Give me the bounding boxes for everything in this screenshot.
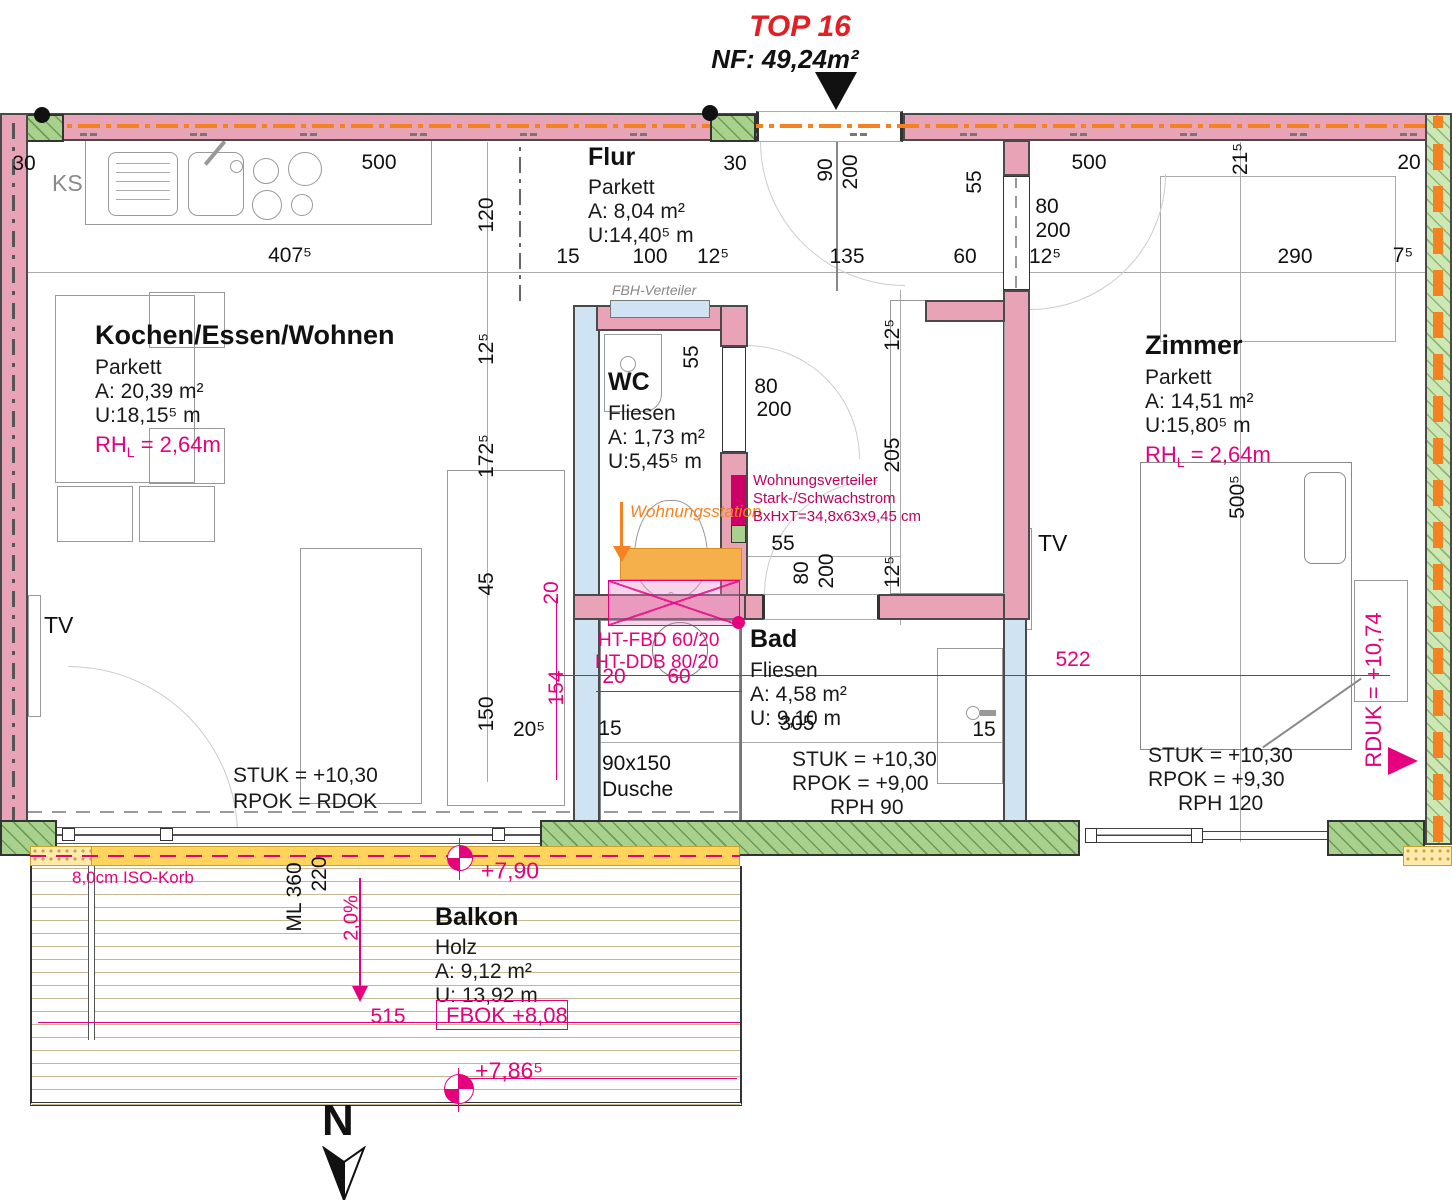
dusche-size-label: 90x150 — [602, 752, 671, 776]
dimension-label: 80 — [1035, 195, 1058, 219]
window-frame — [1191, 828, 1203, 843]
dimension-label: 200 — [756, 398, 791, 422]
room-area-zimmer: A: 14,51 m² — [1145, 390, 1254, 414]
ht-element-box — [608, 580, 740, 626]
sink-tap — [230, 160, 243, 173]
wohnungsverteiler-line3: BxHxT=34,8x63x9,45 cm — [753, 508, 921, 525]
wardrobe-niche — [890, 300, 1005, 594]
survey-point — [444, 1074, 474, 1104]
fixed-glazing — [1203, 831, 1327, 840]
dimension-label: 12⁵ — [697, 245, 729, 269]
dimension-label: 200 — [1035, 219, 1070, 243]
dimension-label: 21⁵ — [1229, 143, 1253, 175]
dimension-label: 80 — [790, 561, 814, 584]
dimension-label: 515 — [370, 1005, 405, 1029]
room-floor-flur: Parkett — [588, 176, 655, 200]
room-divider-dashed — [519, 141, 521, 301]
stove-burner — [288, 152, 322, 186]
fbh-cabinet — [610, 300, 710, 318]
sofa — [447, 470, 565, 806]
rh-value: = 2,64m — [135, 432, 221, 457]
dimension-label: 15 — [556, 245, 579, 269]
dimension-label: ML 360 — [283, 862, 307, 931]
rh-prefix: RH — [1145, 442, 1177, 467]
dimension-label: 20 — [602, 665, 625, 689]
dimension-label: 45 — [475, 572, 499, 595]
wohnungsstation-box — [620, 548, 742, 580]
dimension-label: +7,86⁵ — [475, 1058, 543, 1085]
level-rph-zimmer: RPH 120 — [1178, 792, 1263, 816]
wall-inner-dash — [12, 118, 15, 823]
rh-sub: L — [1177, 454, 1185, 470]
room-height-wohnen: RHL = 2,64m — [95, 432, 221, 460]
iso-korb-honeycomb — [1403, 846, 1452, 866]
nf-area-label: NF: 49,24m² — [650, 44, 920, 75]
dimension-label: 20 — [1397, 151, 1420, 175]
room-perimeter-wohnen: U:18,15⁵ m — [95, 404, 201, 428]
room-perimeter-zimmer: U:15,80⁵ m — [1145, 414, 1251, 438]
room-area-flur: A: 8,04 m² — [588, 200, 685, 224]
wohnungsstation-arrow — [620, 502, 623, 548]
chair — [139, 486, 215, 542]
balcony-door-arc — [68, 666, 238, 836]
shower-partition — [740, 620, 742, 820]
dimension-label: 60 — [667, 665, 690, 689]
dimension-label: 20 — [540, 581, 564, 604]
dimension-label: 30 — [723, 152, 746, 176]
ht-dot — [732, 616, 745, 629]
entrance-marker-icon — [815, 72, 857, 110]
dimension-label: 135 — [829, 245, 864, 269]
dimension-label: 200 — [839, 154, 863, 189]
survey-point — [447, 845, 473, 871]
level-rph-bad: RPH 90 — [830, 796, 904, 820]
rh-sub: L — [127, 444, 135, 460]
dimension-label: 150 — [475, 696, 499, 731]
wohnungsstation-arrowhead — [613, 546, 631, 562]
slope-label: 2,0% — [341, 895, 364, 941]
balcony-deck — [30, 866, 742, 1106]
slope-arrowhead — [352, 986, 368, 1002]
rh-prefix: RH — [95, 432, 127, 457]
dimension-label: 15 — [598, 717, 621, 741]
wc-door-leaf — [722, 347, 746, 452]
room-name-wohnen: Kochen/Essen/Wohnen — [95, 320, 395, 351]
iso-dashed-line — [30, 855, 740, 857]
room-floor-wohnen: Parkett — [95, 356, 162, 380]
dimension-label: 305 — [779, 712, 814, 736]
window-frame — [1085, 828, 1097, 843]
bad-wall-top — [878, 594, 1007, 620]
balcony-door-leaf-open — [88, 866, 95, 1040]
survey-dot — [702, 105, 718, 121]
dimension-label: 172⁵ — [475, 434, 499, 478]
survey-crosshair — [459, 838, 460, 880]
dimension-label: 90 — [814, 158, 838, 181]
sliding-door — [57, 827, 540, 844]
dimension-label: 12⁵ — [475, 333, 499, 365]
dimension-label: 30 — [12, 152, 35, 176]
survey-dot — [34, 107, 50, 123]
stove-burner — [253, 158, 279, 184]
dimension-label: 55 — [680, 345, 704, 368]
dimension-label: 220 — [308, 856, 332, 891]
wall-column — [710, 114, 756, 142]
room-area-bad: A: 4,58 m² — [750, 683, 847, 707]
page-title: TOP 16 — [695, 10, 905, 44]
fbh-verteiler-label: FBH-Verteiler — [612, 282, 696, 298]
room-floor-zimmer: Parkett — [1145, 366, 1212, 390]
north-arrow-icon — [316, 1146, 372, 1200]
door-handle — [160, 828, 173, 841]
level-rpok-zimmer: RPOK = +9,30 — [1148, 768, 1285, 792]
dim-line-ht — [596, 691, 742, 692]
dimension-label: +7,90 — [481, 858, 539, 885]
dimension-label: 55 — [963, 170, 987, 193]
dimension-label: 120 — [475, 197, 499, 232]
dimension-label: 290 — [1277, 245, 1312, 269]
door-handle — [62, 828, 75, 841]
level-stuk-zimmer: STUK = +10,30 — [1148, 744, 1293, 768]
wohnungsverteiler-line2: Stark-/Schwachstrom — [753, 490, 896, 507]
dimension-label: 205 — [881, 437, 905, 472]
flur-zimmer-wall — [1003, 290, 1030, 620]
dimension-label: 55 — [771, 532, 794, 556]
dimension-label: 500 — [1071, 151, 1106, 175]
stove-burner — [252, 190, 282, 220]
wohnungsverteiler-line1: Wohnungsverteiler — [753, 472, 878, 489]
dimension-label: 522 — [1055, 648, 1090, 672]
rh-value: = 2,64m — [1185, 442, 1271, 467]
north-letter: N — [322, 1096, 354, 1146]
bad-wall-top — [744, 594, 764, 620]
ht-fbd-label: HT-FBD 60/20 — [598, 630, 719, 652]
rduk-label: RDUK = +10,74 — [1361, 612, 1387, 767]
level-rpok-bad: RPOK = +9,00 — [792, 772, 929, 796]
room-floor-bad: Fliesen — [750, 659, 818, 683]
dimension-label: 500 — [361, 151, 396, 175]
wc-wall-left — [573, 305, 600, 822]
room-area-balkon: A: 9,12 m² — [435, 960, 532, 984]
dimension-label: 200 — [815, 553, 839, 588]
room-floor-balkon: Holz — [435, 936, 477, 960]
dimension-label: 100 — [632, 245, 667, 269]
level-stuk-living: STUK = +10,30 — [233, 764, 378, 788]
zimmer-window — [1085, 828, 1203, 843]
room-height-zimmer: RHL = 2,64m — [1145, 442, 1271, 470]
room-name-bad: Bad — [750, 625, 797, 654]
survey-crosshair — [458, 1068, 459, 1112]
bad-door-opening — [762, 594, 880, 620]
chair — [57, 486, 133, 542]
room-name-balkon: Balkon — [435, 903, 518, 932]
rduk-arrowhead — [1388, 747, 1418, 775]
room-area-wc: A: 1,73 m² — [608, 426, 705, 450]
wohnungsstation-label: Wohnungsstation — [630, 502, 761, 522]
dimension-label: 80 — [754, 375, 777, 399]
wc-wall-right — [720, 305, 748, 347]
room-name-flur: Flur — [588, 143, 635, 172]
fbok-label: FBOK +8,08 — [446, 1003, 568, 1029]
room-name-zimmer: Zimmer — [1145, 330, 1243, 361]
room-perimeter-wc: U:5,45⁵ m — [608, 450, 702, 474]
niche-wall-stub — [925, 300, 1005, 322]
dimension-label: 20⁵ — [513, 718, 545, 742]
fridge-label: KS — [52, 170, 83, 197]
level-rpok-living: RPOK = RDOK — [233, 790, 377, 814]
wall-column-small — [731, 525, 746, 543]
level-stuk-bad: STUK = +10,30 — [792, 748, 937, 772]
dimension-label: 60 — [953, 245, 976, 269]
tv-label-living: TV — [44, 612, 73, 639]
dimension-label: 15 — [972, 718, 995, 742]
tv-furniture — [28, 595, 41, 717]
tv-label-zimmer: TV — [1038, 530, 1067, 557]
bad-zimmer-wall — [1003, 618, 1027, 848]
dimension-label: 500⁵ — [1226, 475, 1250, 519]
room-area-wohnen: A: 20,39 m² — [95, 380, 204, 404]
right-wall-orange-dashes — [1433, 116, 1443, 842]
dimension-label: 12⁵ — [881, 319, 905, 351]
zimmer-door-dash — [1015, 178, 1017, 288]
dimension-label: 7⁵ — [1393, 244, 1413, 268]
door-handle — [492, 828, 505, 841]
flur-zimmer-wall — [1003, 140, 1030, 176]
pillow — [1304, 472, 1346, 564]
basin-tap-spout — [980, 710, 996, 716]
dimension-label: 154 — [545, 670, 569, 705]
room-name-wc: WC — [608, 368, 650, 397]
dimension-label: 407⁵ — [268, 244, 312, 268]
dusche-label: Dusche — [602, 778, 673, 802]
drainer-lines — [116, 160, 170, 208]
dimension-label: 12⁵ — [1029, 245, 1061, 269]
dimension-label: 12⁵ — [881, 556, 905, 588]
iso-korb-label: 8,0cm ISO-Korb — [72, 868, 194, 888]
room-floor-wc: Fliesen — [608, 402, 676, 426]
stove-burner — [291, 194, 313, 216]
floor-plan: TOP 16 NF: 49,24m² — [0, 0, 1452, 1200]
